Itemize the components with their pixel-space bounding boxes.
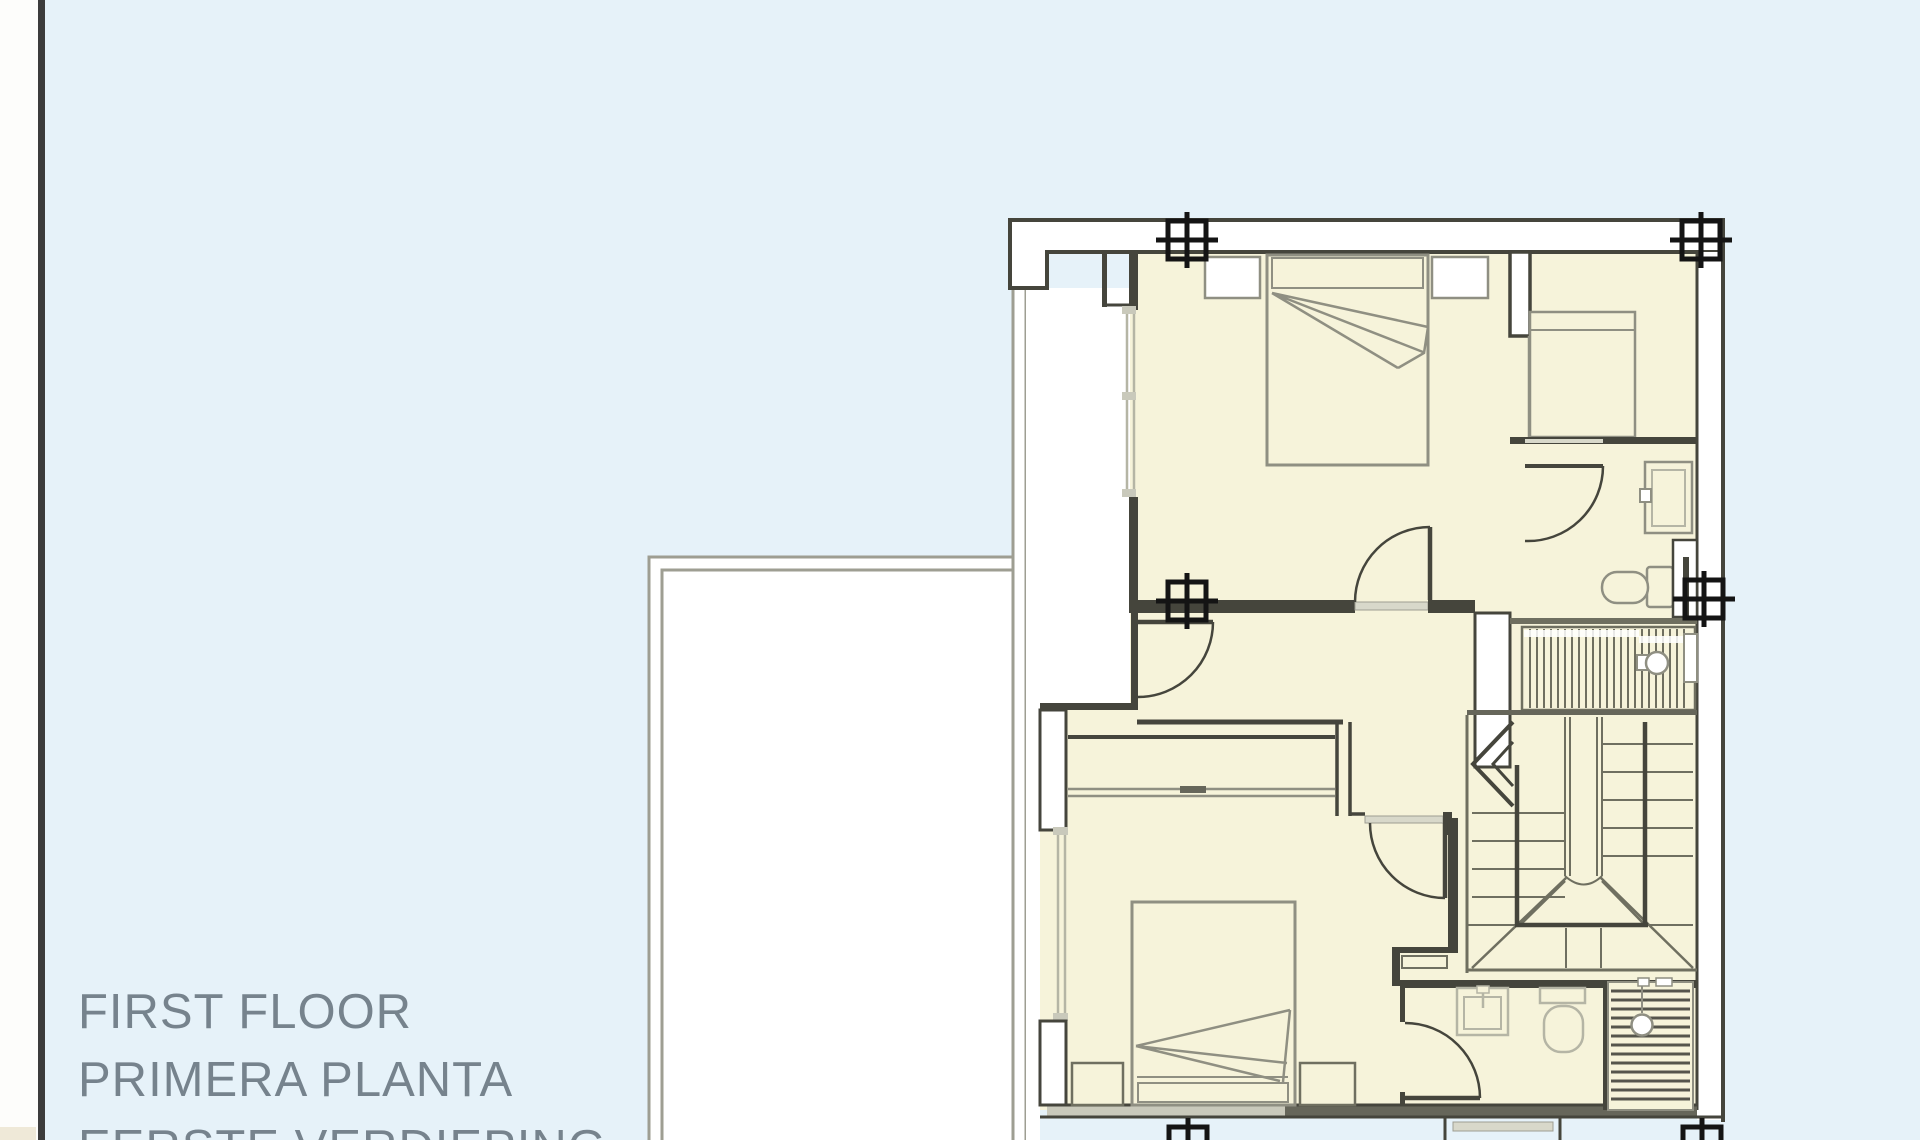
nightstand-right <box>1432 257 1488 298</box>
nightstand <box>1300 1063 1355 1105</box>
page-left-edge <box>0 0 45 1140</box>
floor-plan-page: FIRST FLOOR PRIMERA PLANTA EERSTE VERDIE… <box>0 0 1920 1140</box>
caption-spanish: PRIMERA PLANTA <box>78 1056 513 1105</box>
single-bed-room2 <box>1530 312 1635 437</box>
caption-dutch: EERSTE VERDIEPING <box>78 1124 607 1140</box>
toilet-icon-top <box>1647 567 1673 607</box>
shower-grate <box>1608 978 1693 1110</box>
nightstand-left <box>1205 257 1260 298</box>
floor-plan-drawing <box>0 0 1920 1140</box>
toilet-icon-bottom <box>1540 988 1585 1003</box>
pillow-band <box>1272 258 1423 288</box>
shower-drain-icon <box>1632 1015 1653 1036</box>
wardrobe <box>1072 1063 1123 1105</box>
pillow-band <box>1138 1083 1288 1102</box>
caption-english: FIRST FLOOR <box>78 988 412 1037</box>
